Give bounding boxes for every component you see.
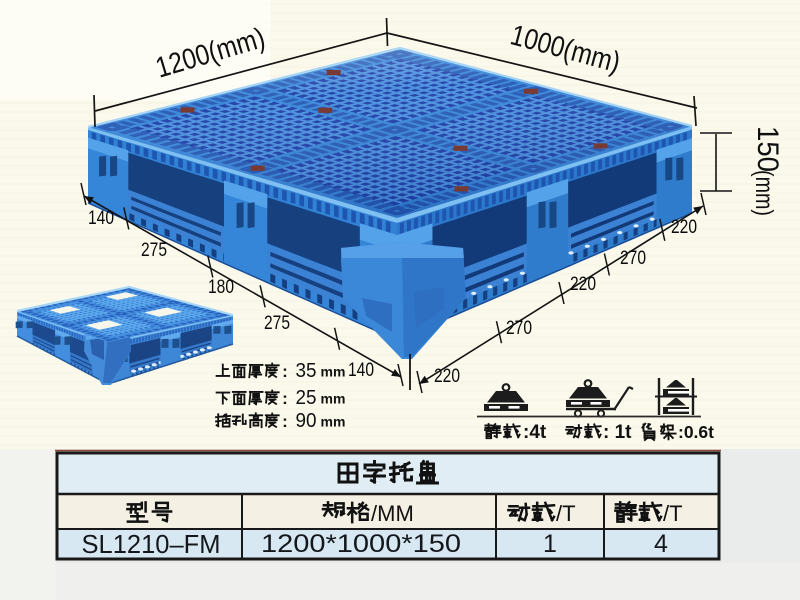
svg-text:1: 1 <box>543 530 557 558</box>
svg-text:/MM: /MM <box>371 501 414 526</box>
svg-text:140: 140 <box>88 208 114 229</box>
svg-text::: : <box>282 362 288 381</box>
svg-text:/T: /T <box>556 501 576 526</box>
svg-text:90: 90 <box>296 410 317 432</box>
svg-text:220: 220 <box>570 274 596 295</box>
svg-text:SL1210–FM: SL1210–FM <box>82 531 221 559</box>
svg-text:270: 270 <box>620 248 646 269</box>
svg-text:270: 270 <box>506 318 532 339</box>
svg-text:35: 35 <box>296 360 317 382</box>
svg-text:mm: mm <box>321 414 346 430</box>
svg-text:150: 150 <box>751 126 784 172</box>
svg-text:275: 275 <box>264 313 290 334</box>
svg-text::: : <box>282 412 288 431</box>
svg-text:: 1t: : 1t <box>603 422 632 443</box>
svg-text:/T: /T <box>663 501 683 526</box>
svg-text:mm: mm <box>321 391 346 407</box>
svg-text:140: 140 <box>348 360 374 381</box>
svg-text::4t: :4t <box>523 422 547 443</box>
svg-text::: : <box>282 389 288 408</box>
svg-text:(mm): (mm) <box>750 170 778 216</box>
svg-text:1200*1000*150: 1200*1000*150 <box>261 530 461 558</box>
svg-text:180: 180 <box>208 277 234 298</box>
svg-text:mm: mm <box>321 364 346 380</box>
svg-text:25: 25 <box>296 387 317 409</box>
svg-text:220: 220 <box>671 217 697 238</box>
svg-text:275: 275 <box>141 240 167 261</box>
svg-text:4: 4 <box>654 530 668 558</box>
svg-text:220: 220 <box>434 366 460 387</box>
svg-text::0.6t: :0.6t <box>678 422 714 442</box>
